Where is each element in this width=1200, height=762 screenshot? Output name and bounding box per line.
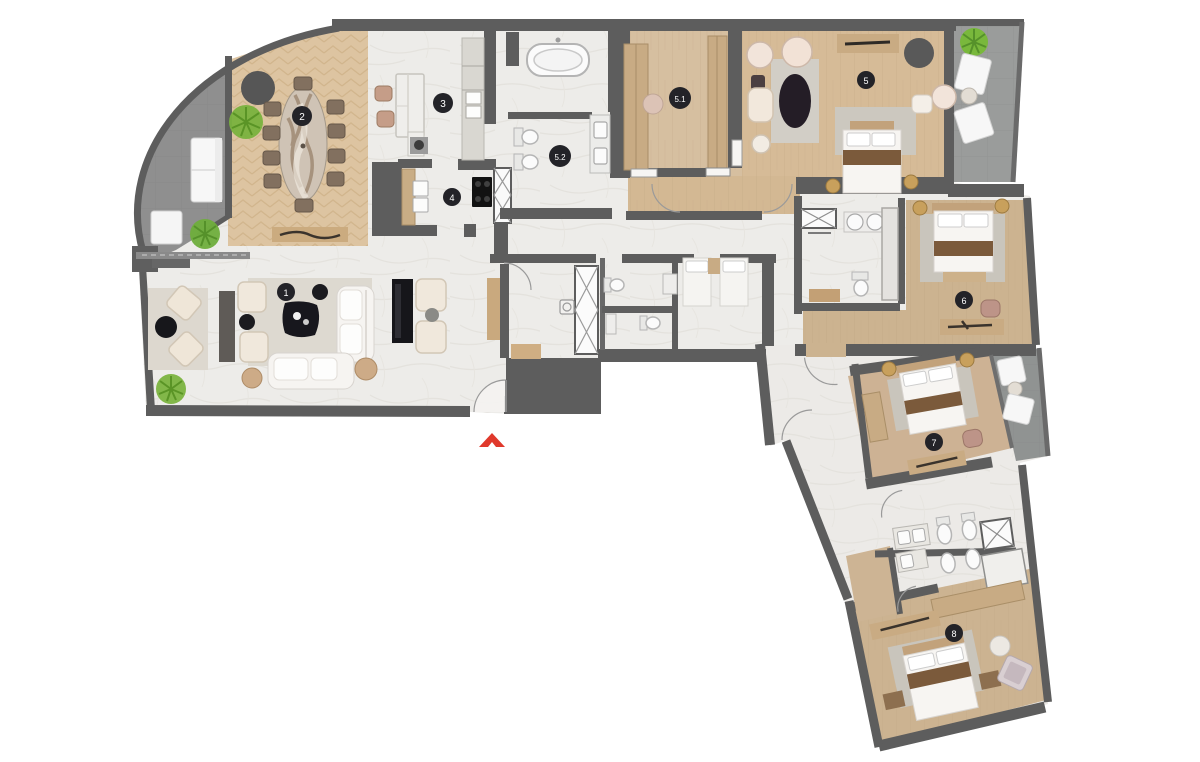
- svg-text:8: 8: [951, 629, 956, 639]
- svg-text:3: 3: [440, 99, 446, 110]
- svg-text:7: 7: [931, 438, 936, 448]
- svg-text:5.1: 5.1: [674, 95, 686, 104]
- svg-text:6: 6: [961, 296, 966, 306]
- svg-text:4: 4: [449, 193, 454, 203]
- svg-text:5: 5: [863, 76, 868, 86]
- svg-text:5.2: 5.2: [554, 153, 566, 162]
- svg-text:2: 2: [299, 112, 305, 123]
- svg-text:1: 1: [283, 288, 288, 298]
